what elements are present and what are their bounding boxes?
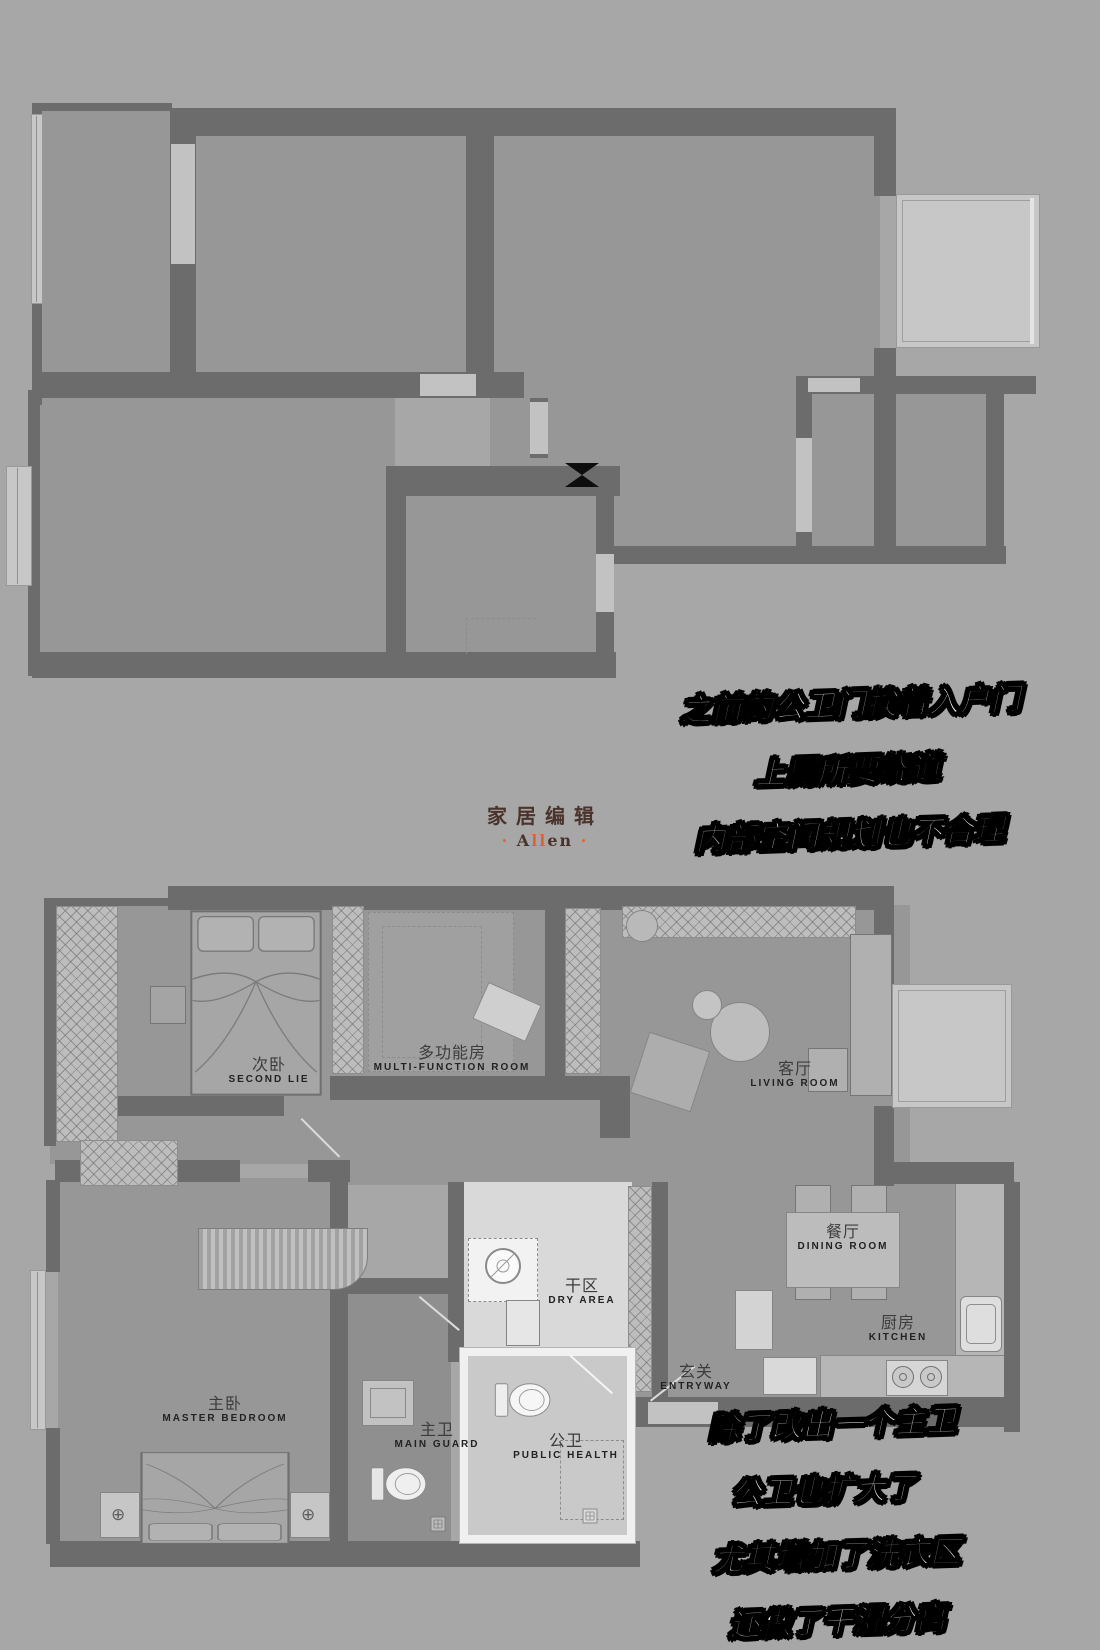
before-note-line-1: 之前的公卫门挨着入户门 xyxy=(680,674,1022,730)
room-label-master-bedroom: 主卧 MASTER BEDROOM xyxy=(162,1395,287,1425)
door-opening xyxy=(796,438,812,532)
wall-segment xyxy=(330,1076,630,1100)
wall-segment xyxy=(874,1106,894,1186)
wall-segment xyxy=(348,1278,460,1294)
dry-area-vanity xyxy=(506,1300,540,1346)
door-opening xyxy=(420,374,476,396)
wall-segment xyxy=(1004,1182,1020,1432)
wall-segment xyxy=(50,1541,640,1567)
window-bay xyxy=(6,466,32,586)
nightstand xyxy=(150,986,186,1024)
wall-segment xyxy=(44,898,56,1146)
wall-segment xyxy=(308,1160,350,1182)
after-note-line-4: 还做了干湿分离 xyxy=(729,1593,947,1645)
room-label-dining-room: 餐厅 DINING ROOM xyxy=(798,1223,889,1253)
door-opening xyxy=(530,402,548,454)
room-label-dry-area: 干区 DRY AREA xyxy=(548,1277,615,1307)
entry-door-marker-icon xyxy=(564,462,600,488)
wall-segment xyxy=(874,108,896,196)
window-sill xyxy=(1030,198,1034,344)
poster-canvas: 家居编辑 · Allen · 之前的公卫门挨着入户门 上厕所要绕道 内部空间规划… xyxy=(0,0,1100,1650)
floor-area xyxy=(180,120,480,380)
wall-segment xyxy=(46,1180,60,1272)
dashed-nook xyxy=(466,618,536,654)
wall-segment xyxy=(448,1182,464,1362)
wall-segment xyxy=(32,652,616,678)
stove-burner xyxy=(892,1366,914,1388)
bed-master-bedroom xyxy=(140,1452,290,1544)
after-note-line-2: 公卫也扩大了 xyxy=(730,1463,917,1513)
window-bay xyxy=(30,1270,46,1430)
window-frame xyxy=(902,200,1034,342)
room-label-second-bedroom: 次卧 SECOND LIE xyxy=(228,1056,309,1086)
door-opening xyxy=(808,378,860,392)
room-label-kitchen: 厨房 KITCHEN xyxy=(869,1314,927,1344)
master-bath-vanity-basin xyxy=(370,1388,406,1418)
brand-logo: 家居编辑 · Allen · xyxy=(487,800,603,850)
window-glass-line xyxy=(36,116,37,302)
floor-area xyxy=(35,390,395,660)
toilet-master xyxy=(370,1462,432,1506)
washing-machine xyxy=(483,1246,523,1286)
toilet-public xyxy=(492,1378,558,1422)
window-glass-line xyxy=(37,1272,38,1428)
room-label-public-bathroom: 公卫 PUBLIC HEALTH xyxy=(513,1432,619,1462)
room-label-multi-function: 多功能房 MULTI-FUNCTION ROOM xyxy=(374,1044,531,1074)
shoe-cabinet xyxy=(735,1290,773,1350)
door-opening xyxy=(596,554,614,612)
room-label-entryway: 玄关 ENTRYWAY xyxy=(660,1363,731,1393)
window-bay xyxy=(31,114,43,304)
floor-area xyxy=(605,460,805,555)
lamp-icon: ⊕ xyxy=(301,1506,315,1523)
wardrobe-strip xyxy=(332,906,364,1074)
wall-segment xyxy=(32,103,172,111)
wall-segment xyxy=(46,1428,60,1544)
door-opening xyxy=(171,144,195,264)
coffee-table-small xyxy=(692,990,722,1020)
room-label-living-room: 客厅 LIVING ROOM xyxy=(750,1060,839,1090)
master-wardrobe xyxy=(198,1228,368,1290)
fridge xyxy=(763,1357,817,1395)
cabinet-strip xyxy=(565,908,601,1074)
wall-segment xyxy=(986,376,1004,562)
wall-segment xyxy=(545,886,565,1092)
kitchen-sink-basin xyxy=(966,1304,996,1344)
wall-segment xyxy=(44,898,170,906)
brand-logo-latin: · Allen · xyxy=(487,831,603,850)
lamp-icon: ⊕ xyxy=(111,1506,125,1523)
tatami-inner xyxy=(382,926,482,1058)
room-label-master-bathroom: 主卫 MAIN GUARD xyxy=(395,1421,480,1451)
wall-segment xyxy=(466,108,494,398)
brand-logo-chinese: 家居编辑 xyxy=(487,800,603,829)
wall-segment xyxy=(600,1076,630,1138)
floor-area xyxy=(38,108,173,398)
floor-mat xyxy=(80,1140,178,1186)
floor-area xyxy=(805,385,995,555)
wall-segment xyxy=(386,482,406,654)
balcony-curtain-strip xyxy=(56,906,118,1142)
floor-drain-icon xyxy=(430,1516,446,1532)
wall-segment xyxy=(892,1162,1014,1184)
plant-pot xyxy=(626,910,658,942)
wall-segment xyxy=(118,1096,284,1116)
sofa xyxy=(850,934,892,1096)
after-note-line-3: 尤其增加了洗衣区 xyxy=(712,1527,961,1580)
floor-drain-icon xyxy=(582,1508,598,1524)
window-frame xyxy=(898,990,1006,1102)
wall-segment xyxy=(170,108,892,136)
stove-burner xyxy=(920,1366,942,1388)
before-note-line-3: 内部空间规划也不合理 xyxy=(694,805,1005,860)
window-glass-line xyxy=(17,468,18,584)
after-note-line-1: 除了改出一个主卫 xyxy=(708,1396,957,1449)
floor-plan-before xyxy=(30,100,1015,680)
before-note-line-2: 上厕所要绕道 xyxy=(754,743,941,793)
